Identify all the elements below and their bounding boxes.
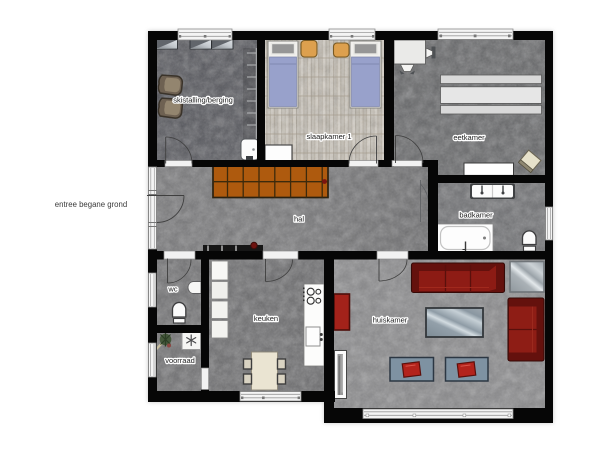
svg-text:slaapkamer 1: slaapkamer 1 (306, 132, 351, 141)
svg-text:huiskamer: huiskamer (373, 316, 408, 325)
svg-text:hal: hal (294, 215, 304, 224)
svg-text:eetkamer: eetkamer (453, 133, 485, 142)
svg-text:voorraad: voorraad (165, 356, 195, 365)
svg-text:wc: wc (167, 285, 177, 294)
svg-text:skistalling/berging: skistalling/berging (173, 96, 233, 105)
svg-text:badkamer: badkamer (459, 211, 493, 220)
svg-text:entree begane grond: entree begane grond (55, 200, 127, 209)
svg-text:keuken: keuken (254, 314, 278, 323)
